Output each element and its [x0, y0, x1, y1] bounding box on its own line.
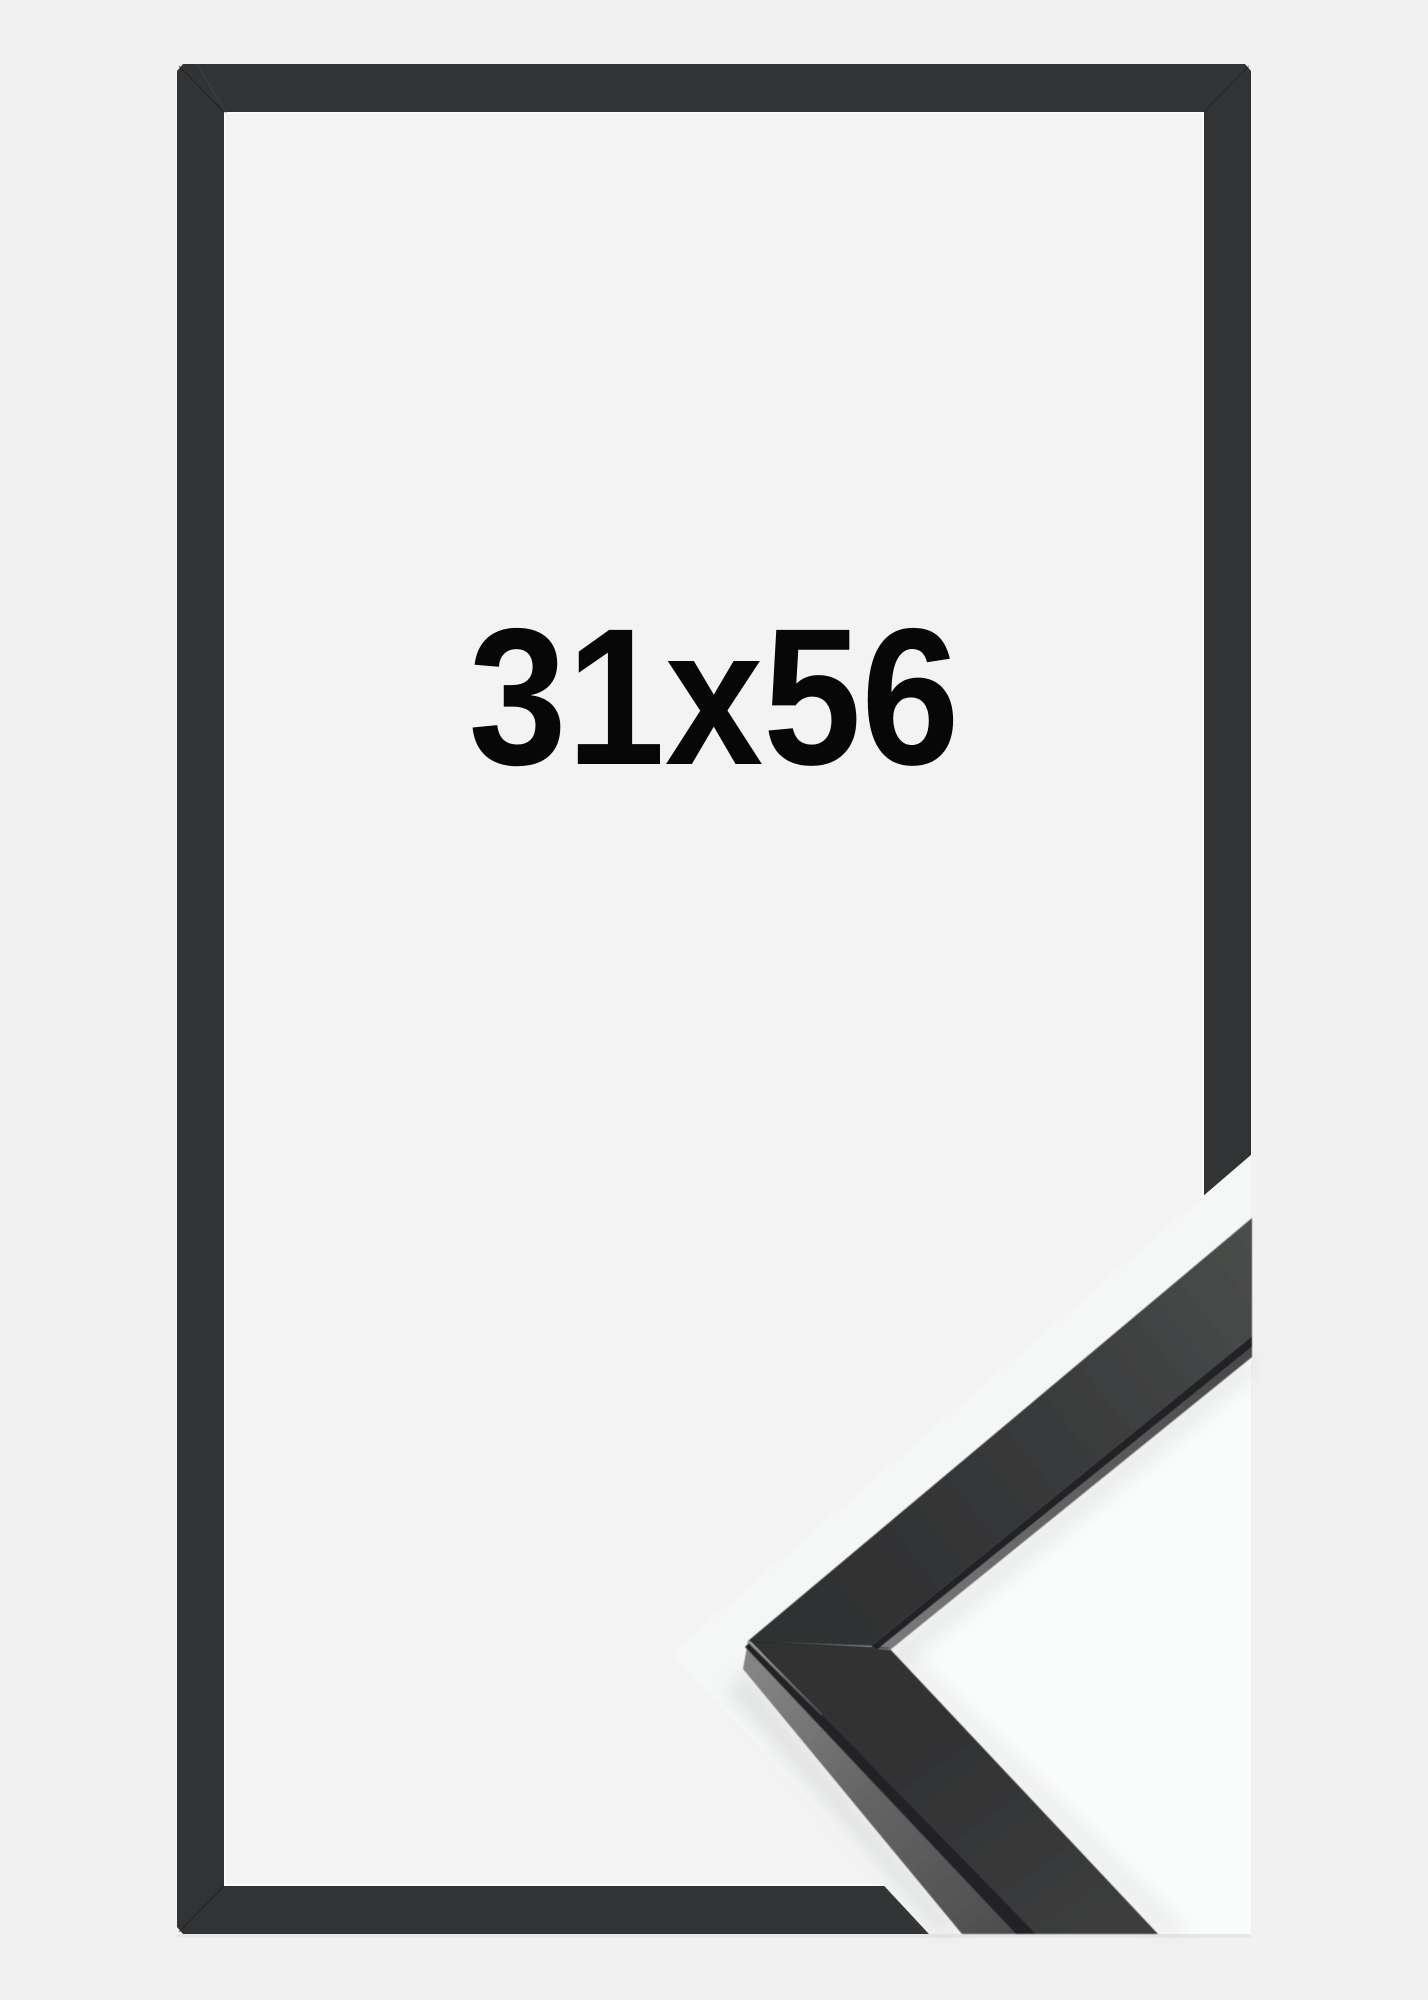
svg-text:31x56: 31x56: [469, 588, 960, 806]
